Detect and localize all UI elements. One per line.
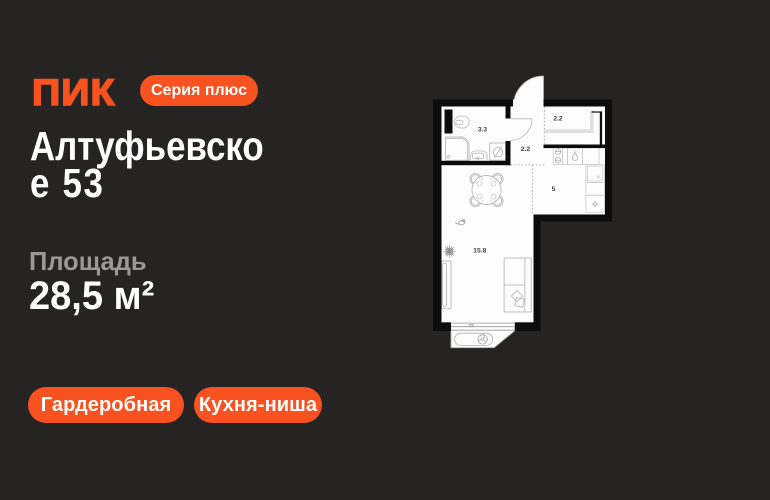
svg-text:3.3: 3.3 bbox=[478, 126, 488, 133]
svg-text:2.2: 2.2 bbox=[553, 116, 563, 123]
svg-text:15.8: 15.8 bbox=[473, 248, 486, 255]
svg-text:5: 5 bbox=[552, 186, 556, 193]
svg-text:2.2: 2.2 bbox=[521, 146, 531, 153]
